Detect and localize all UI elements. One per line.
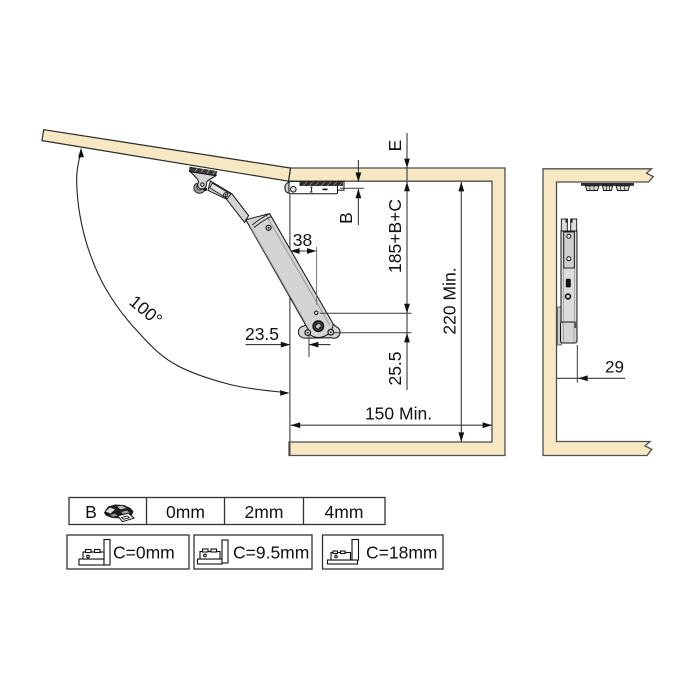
- svg-text:C=9.5mm: C=9.5mm: [233, 543, 309, 563]
- svg-text:0mm: 0mm: [166, 502, 205, 522]
- svg-text:C=0mm: C=0mm: [113, 543, 175, 563]
- svg-text:38: 38: [293, 230, 312, 250]
- svg-text:150 Min.: 150 Min.: [365, 404, 432, 424]
- svg-text:220 Min.: 220 Min.: [439, 267, 459, 334]
- svg-text:C=18mm: C=18mm: [366, 543, 437, 563]
- svg-text:B: B: [85, 502, 97, 522]
- svg-text:185+B+C: 185+B+C: [385, 199, 405, 273]
- svg-text:4mm: 4mm: [325, 502, 364, 522]
- svg-text:23.5: 23.5: [245, 324, 279, 344]
- svg-text:29: 29: [605, 358, 624, 377]
- svg-text:B: B: [336, 212, 356, 224]
- svg-text:2mm: 2mm: [245, 502, 284, 522]
- svg-text:E: E: [385, 140, 405, 152]
- svg-text:25.5: 25.5: [385, 351, 405, 385]
